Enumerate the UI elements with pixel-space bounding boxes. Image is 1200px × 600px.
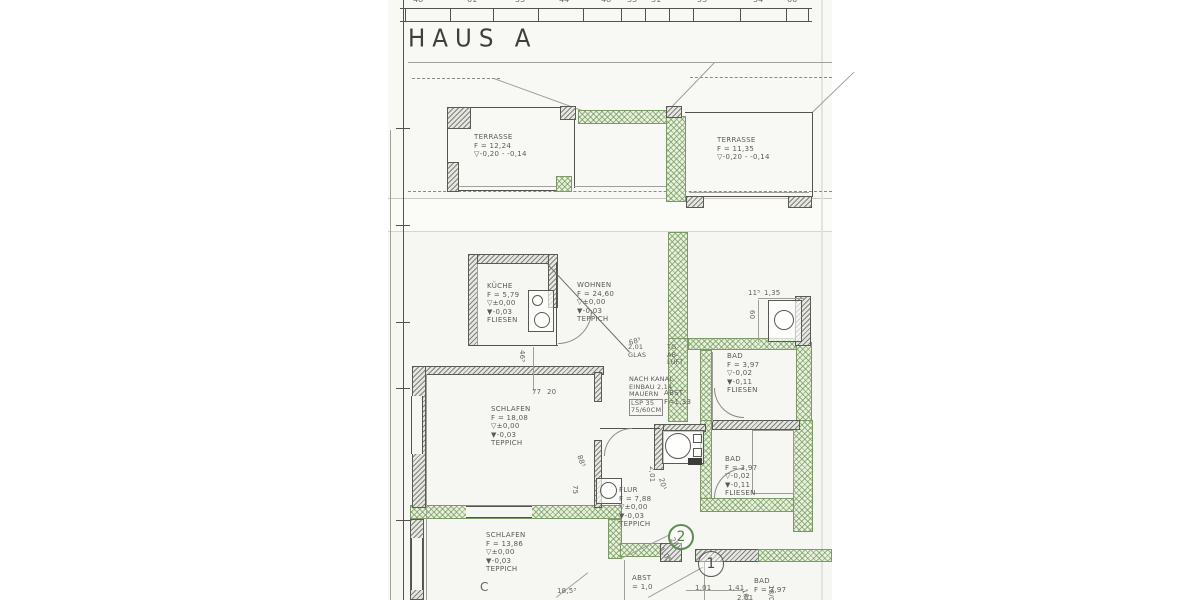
room-area: F = 7,88	[619, 495, 651, 504]
ruler-number: 55	[515, 0, 525, 4]
room-level-upper: ▽±0,00	[619, 503, 651, 512]
room-level-upper: ▽-0,02	[727, 369, 759, 378]
room-label-bad-upper: BAD F = 3,97 ▽-0,02 ▼-0,11 FLIESEN	[727, 352, 759, 395]
roof-line	[408, 62, 832, 63]
ruler-tick	[405, 8, 406, 21]
room-area: F = 3,97	[727, 361, 759, 370]
room-name: BAD	[725, 455, 757, 464]
wc-bowl-icon	[665, 433, 691, 459]
wall-segment	[424, 366, 604, 375]
note-box: LSP 35 75/60CM	[629, 399, 663, 416]
frame-line-left-outer	[390, 130, 391, 600]
room-level-lower: ▼-0,11	[727, 378, 759, 387]
window-symbol	[466, 506, 532, 518]
interior-line	[712, 352, 713, 422]
note-line: MAUERN	[629, 391, 673, 399]
frame-tick	[396, 520, 410, 521]
room-level-upper: ▽-0,20 - -0,14	[717, 153, 770, 162]
bay-wall-line	[574, 112, 575, 188]
ruler-number: 48¹	[413, 0, 426, 4]
room-name: TERRASSE	[717, 136, 770, 145]
washer-drum-icon	[600, 482, 617, 499]
room-level-upper: ▽-0,20 - -0,14	[474, 150, 527, 159]
room-level-lower: ▼-0,03	[486, 557, 526, 566]
room-label-flur: FLUR F = 7,88 ▽±0,00 ▼-0,03 TEPPICH	[619, 486, 651, 529]
room-label-abst-bottom: ABST = 1,0	[632, 574, 653, 591]
ruler-number: 61	[467, 0, 477, 4]
room-floor: TEPPICH	[491, 439, 531, 448]
frame-tick	[396, 388, 410, 389]
ruler-number: 48	[601, 0, 611, 4]
ruler-number: 31	[651, 0, 661, 4]
wall-segment	[447, 162, 459, 192]
dimension-line	[533, 347, 534, 391]
room-level-lower: ▼-0,03	[487, 308, 519, 317]
wall-segment	[594, 372, 602, 402]
scan-crease	[821, 0, 823, 600]
room-name: FLUR	[619, 486, 651, 495]
ruler-number: 35	[627, 0, 637, 4]
room-level-lower: ▼-0,11	[725, 481, 757, 490]
wall-segment	[712, 420, 800, 430]
room-label-schlafen-upper: SCHLAFEN F = 18,08 ▽±0,00 ▼-0,03 TEPPICH	[491, 405, 531, 448]
wall-segment	[686, 196, 704, 208]
room-level-upper: ▽±0,00	[577, 298, 614, 307]
dimension-label: C	[480, 580, 489, 594]
wall-segment-green	[796, 342, 812, 430]
ruler-tick	[583, 8, 584, 21]
wall-segment	[788, 196, 812, 208]
room-floor: TEPPICH	[577, 315, 614, 324]
ruler-tick	[808, 8, 809, 21]
terrace-right-outline	[685, 112, 813, 113]
ruler-line-bottom	[400, 21, 812, 22]
washbasin-bowl-icon	[774, 310, 794, 330]
scan-artifact-band	[388, 198, 832, 232]
room-area: F = 12,24	[474, 142, 527, 151]
ruler-tick	[538, 8, 539, 21]
room-level-upper: ▽-0,02	[725, 472, 757, 481]
dimension-label: 18,5³	[557, 587, 576, 595]
cistern-icon	[693, 434, 702, 443]
interior-line	[470, 345, 558, 346]
room-name: SCHLAFEN	[491, 405, 531, 414]
wall-segment-green	[700, 350, 712, 422]
room-name: SCHLAFEN	[486, 531, 526, 540]
ruler-tick	[493, 8, 494, 21]
room-name: TERRASSE	[474, 133, 527, 142]
frame-tick	[396, 128, 410, 129]
frame-line-left	[403, 0, 404, 600]
room-area: F = 5,79	[487, 291, 519, 300]
room-level-upper: ▽±0,00	[491, 422, 531, 431]
ruler-tick	[669, 8, 670, 21]
dimension-label: 20	[547, 388, 556, 396]
roof-dash-line	[412, 78, 500, 79]
note-kanal: NACH KANAL EINBAU 2,14 MAUERN LSP 35 75/…	[629, 376, 673, 416]
bay-bottom-line	[574, 186, 668, 187]
room-level-upper: ▽±0,00	[486, 548, 526, 557]
ruler-number: 60	[787, 0, 797, 4]
room-label-bad-lower: BAD F = 3,97 ▽-0,02 ▼-0,11 FLIESEN	[725, 455, 757, 498]
note-line: LUFT	[667, 359, 683, 367]
ruler-tick	[786, 8, 787, 21]
wall-segment-green	[793, 420, 813, 532]
floor-plan-scan: HAUS A	[0, 0, 1200, 600]
dimension-label: 75	[571, 485, 579, 494]
dimension-label: 1,01	[695, 584, 711, 592]
ruler-tick	[693, 8, 694, 21]
dimension-label: 2,01	[648, 466, 656, 482]
wall-segment-green	[666, 116, 686, 202]
room-floor: TEPPICH	[619, 520, 651, 529]
ruler-tick	[645, 8, 646, 21]
page-title: HAUS A	[408, 25, 538, 53]
ruler-number: 54	[753, 0, 763, 4]
interior-line	[477, 264, 478, 345]
terrace-left-inner-line	[451, 186, 557, 187]
dimension-label: 1,35	[764, 289, 780, 297]
note-line: GLAS	[628, 352, 646, 360]
wall-segment-green	[758, 549, 832, 562]
room-floor: FLIESEN	[727, 386, 759, 395]
room-floor: FLIESEN	[725, 489, 757, 498]
wall-segment-green	[668, 232, 688, 342]
wall-segment	[447, 107, 471, 129]
frame-tick	[396, 225, 410, 226]
detail-marker-1: 1	[698, 551, 724, 577]
sink-basin-icon	[534, 312, 550, 328]
cistern-icon	[693, 448, 702, 457]
room-area: F = 3,97	[725, 464, 757, 473]
room-level-lower: ▼-0,03	[619, 512, 651, 521]
ruler-tick	[740, 8, 741, 21]
room-level-lower: ▼-0,03	[491, 431, 531, 440]
terrace-right-inner-line	[689, 192, 809, 193]
room-label-wohnen: WOHNEN F = 24,60 ▽±0,00 ▼-0,03 TEPPICH	[577, 281, 614, 324]
window-symbol	[411, 538, 423, 590]
wall-segment-green	[578, 110, 668, 124]
room-name: WOHNEN	[577, 281, 614, 290]
room-area: F = 13,86	[486, 540, 526, 549]
dimension-label: 46⁵	[518, 350, 526, 362]
dimension-label: 77	[532, 388, 541, 396]
dimension-line	[758, 298, 806, 299]
room-area: F = 24,60	[577, 290, 614, 299]
stove-burner-icon	[532, 295, 543, 306]
detail-marker-1-number: 1	[707, 556, 716, 572]
wall-segment	[666, 106, 682, 118]
bathtub-fixture	[752, 430, 794, 494]
room-floor: TEPPICH	[486, 565, 526, 574]
dimension-line	[758, 300, 759, 342]
terrace-right-outline	[812, 112, 813, 197]
room-name: ABST	[632, 574, 653, 583]
terrace-left-outline	[447, 190, 561, 191]
ruler-tick	[621, 8, 622, 21]
room-label-schlafen-lower: SCHLAFEN F = 13,86 ▽±0,00 ▼-0,03 TEPPICH	[486, 531, 526, 574]
room-label-kueche: KÜCHE F = 5,79 ▽±0,00 ▼-0,03 FLIESEN	[487, 282, 519, 325]
dimension-label: 11⁵	[748, 289, 760, 297]
note-line: 75/60CM	[631, 407, 661, 415]
room-area: F = 11,35	[717, 145, 770, 154]
room-name: KÜCHE	[487, 282, 519, 291]
interior-line	[624, 560, 625, 600]
room-label-terrasse-left: TERRASSE F = 12,24 ▽-0,20 - -0,14	[474, 133, 527, 159]
room-floor: FLIESEN	[487, 316, 519, 325]
note-abluft: TG AB- LUFT	[667, 344, 683, 367]
room-level-lower: ▼-0,03	[577, 307, 614, 316]
ruler-tick	[450, 8, 451, 21]
ruler-number: 53	[697, 0, 707, 4]
wall-segment-green	[700, 498, 802, 512]
dimension-label: 60	[748, 310, 756, 319]
room-name: BAD	[727, 352, 759, 361]
room-level-upper: ▽±0,00	[487, 299, 519, 308]
room-label-terrasse-right: TERRASSE F = 11,35 ▽-0,20 - -0,14	[717, 136, 770, 162]
dimension-label: 18/0	[767, 585, 775, 600]
roof-dash-line	[690, 77, 832, 78]
wall-segment	[468, 254, 558, 264]
wall-segment-green	[556, 176, 572, 192]
shaft-fill	[688, 458, 702, 465]
ruler-line-top	[400, 8, 812, 9]
room-area: = 1,0	[632, 583, 653, 592]
window-symbol	[411, 396, 423, 454]
interior-line	[426, 374, 427, 600]
room-area: F = 18,08	[491, 414, 531, 423]
ruler-number: 44	[559, 0, 569, 4]
frame-tick	[396, 322, 410, 323]
wall-segment	[560, 106, 576, 120]
